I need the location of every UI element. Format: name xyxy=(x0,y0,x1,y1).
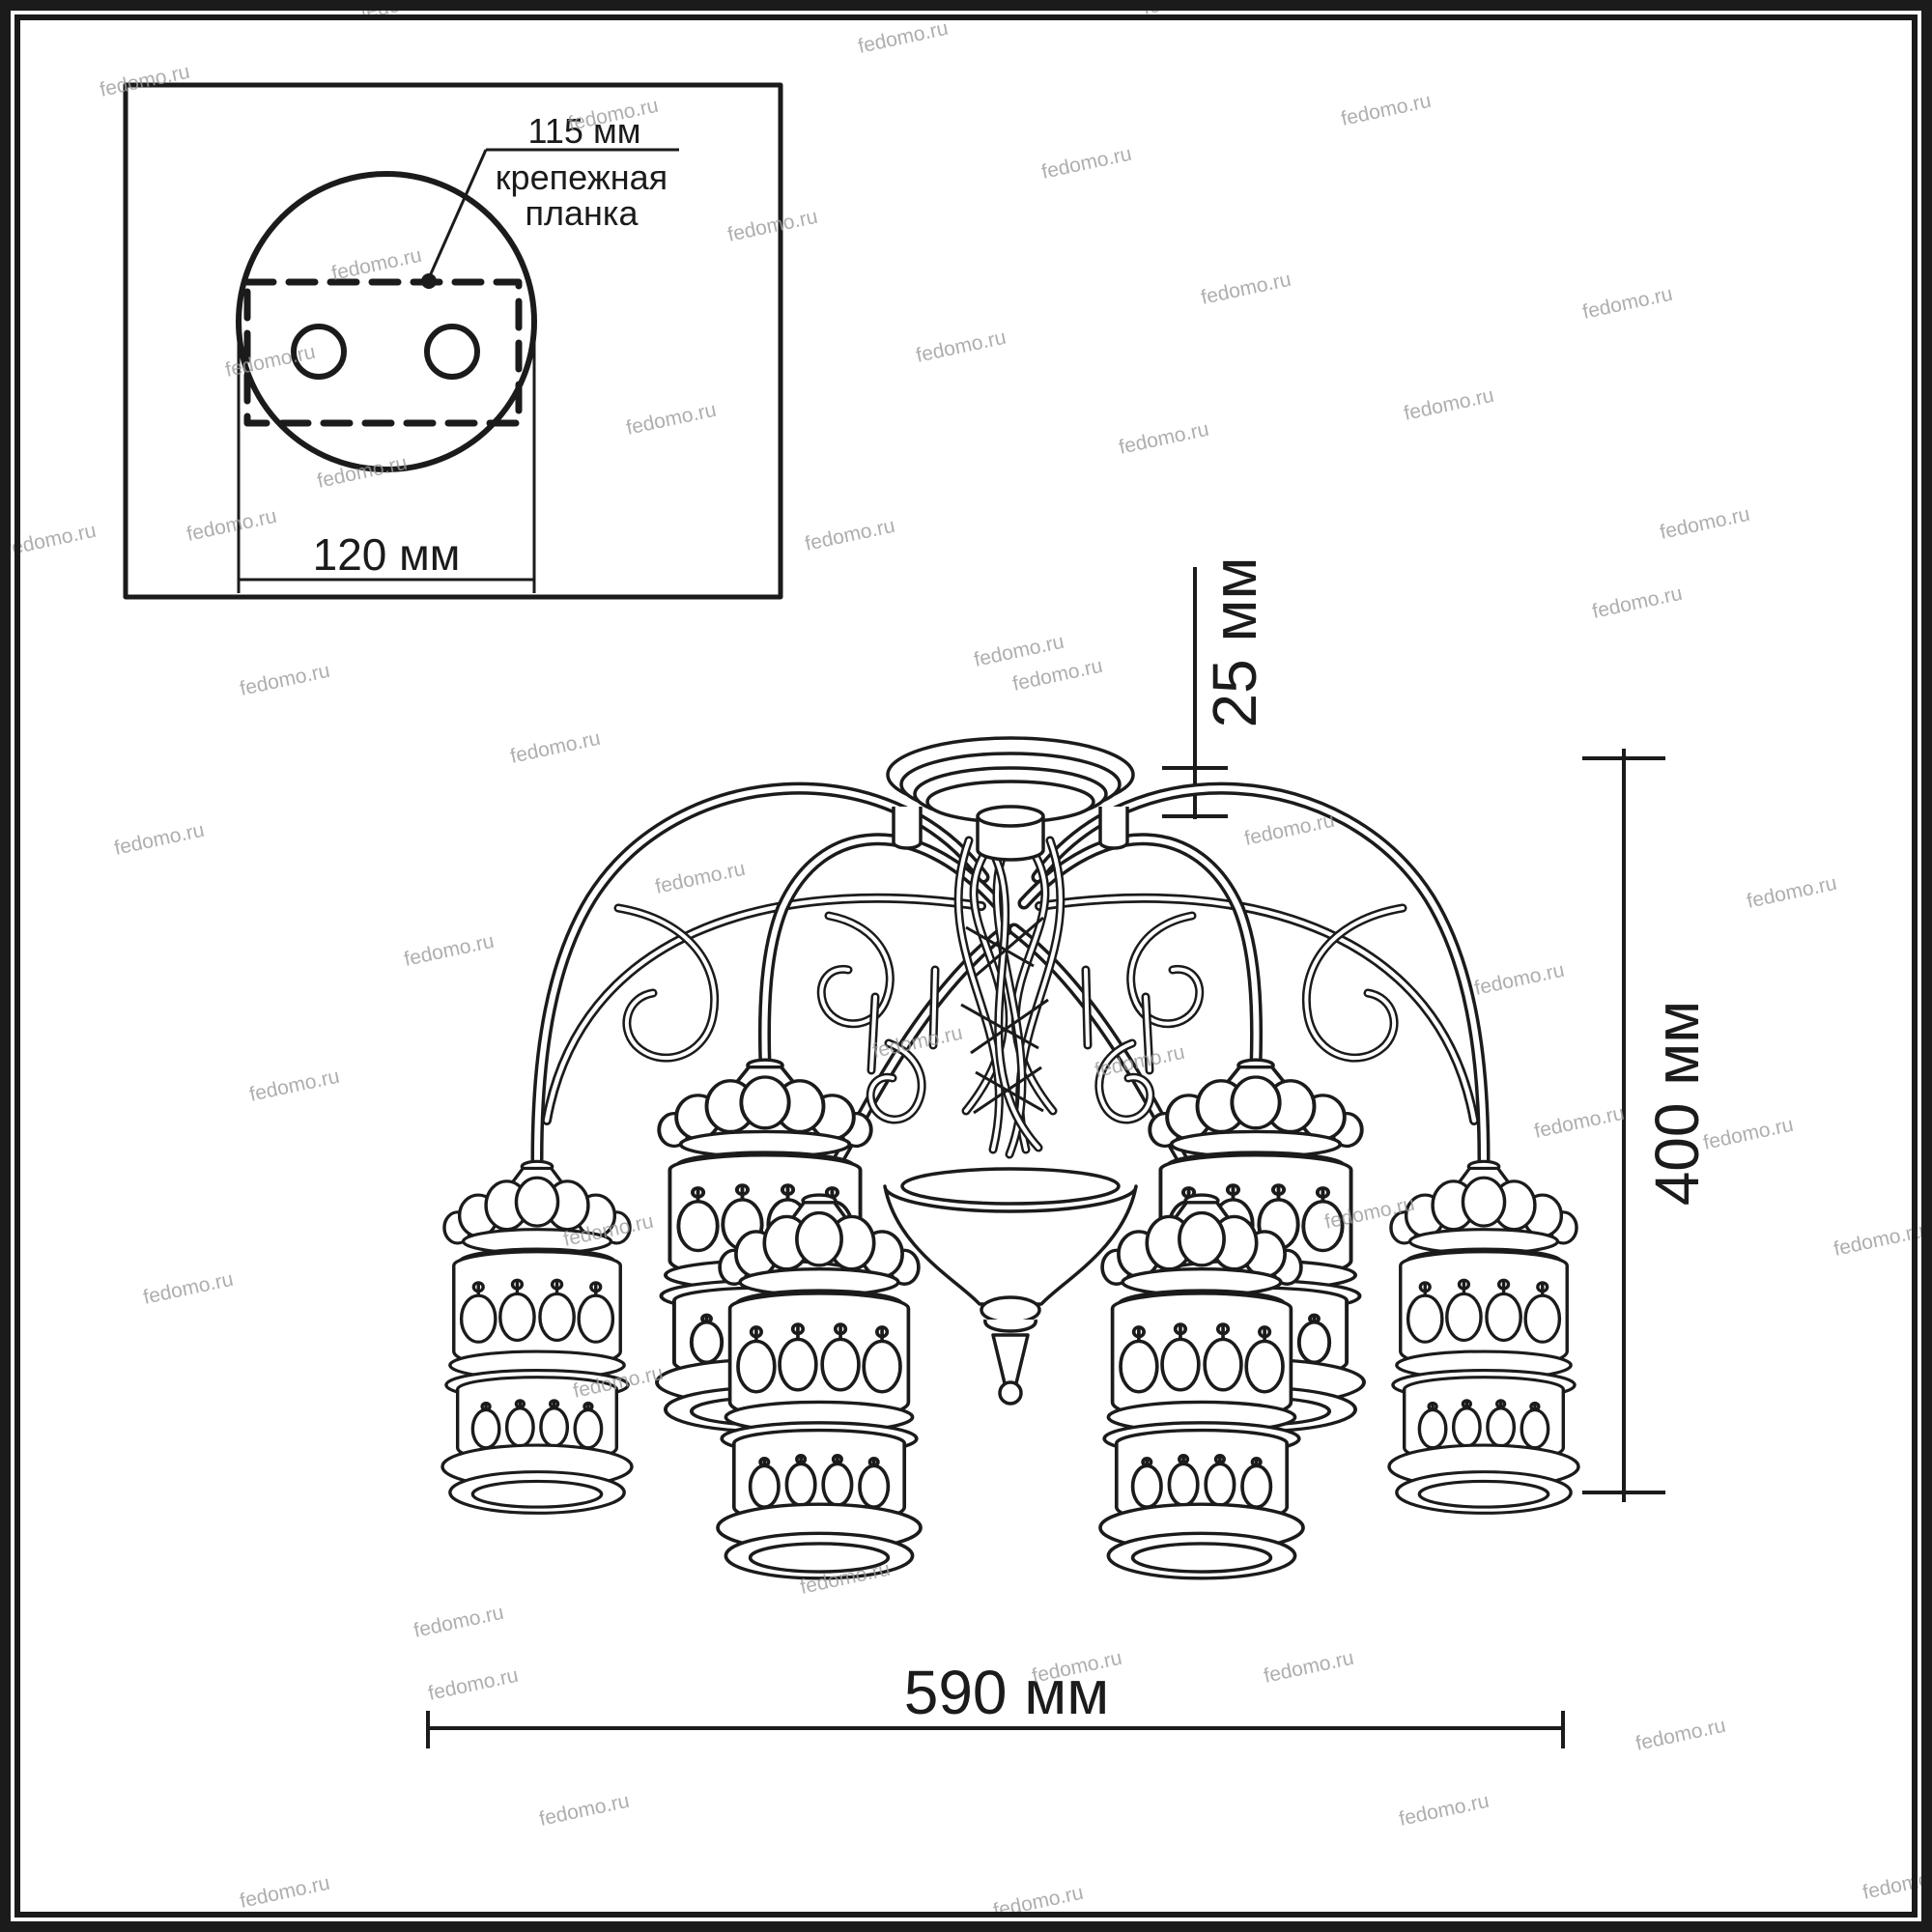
watermark-text: fedomo.ru xyxy=(803,515,896,555)
watermark-text: fedomo.ru xyxy=(1039,143,1133,184)
watermark-text: fedomo.ru xyxy=(1402,384,1495,425)
watermark-text: fedomo.ru xyxy=(508,727,602,768)
center-bowl xyxy=(885,1169,1136,1404)
canopy-finial-right xyxy=(1100,807,1127,848)
diagram-page: 115 мм крепежная планка 120 мм 25 мм 400… xyxy=(0,0,1932,1932)
chandelier-drawing xyxy=(442,738,1578,1578)
watermark-text: fedomo.ru xyxy=(1472,959,1566,1000)
watermark-text: fedomo.ru xyxy=(247,1065,341,1106)
watermark-text: fedomo.ru xyxy=(1242,810,1336,850)
watermark-text: fedomo.ru xyxy=(1532,1102,1626,1143)
watermark-text: fedomo.ru xyxy=(141,1268,235,1309)
dimension-canopy-height: 25 мм xyxy=(1162,557,1269,819)
watermark-text: fedomo.ru xyxy=(856,17,950,58)
lamp-shade-far-left xyxy=(442,1161,632,1513)
watermark-text: fedomo.ru xyxy=(98,61,191,101)
fixture-height-label: 400 мм xyxy=(1642,1001,1712,1207)
canopy-finial-left xyxy=(894,807,921,848)
watermark-text: fedomo.ru xyxy=(725,206,819,246)
technical-drawing: 115 мм крепежная планка 120 мм 25 мм 400… xyxy=(0,0,1932,1932)
dimension-fixture-width: 590 мм xyxy=(428,1658,1563,1748)
watermark-text: fedomo.ru xyxy=(1141,0,1235,19)
watermark-text: fedomo.ru xyxy=(1701,1114,1795,1154)
watermark-text: fedomo.ru xyxy=(1745,872,1838,913)
watermark-text: fedomo.ru xyxy=(624,399,718,440)
watermark-text: fedomo.ru xyxy=(185,505,278,546)
watermark-text: fedomo.ru xyxy=(1832,1220,1925,1261)
watermark-text: fedomo.ru xyxy=(238,660,331,700)
twisted-column xyxy=(958,838,1061,1154)
base-diameter-label: 120 мм xyxy=(313,529,461,580)
watermark-text: fedomo.ru xyxy=(1339,90,1433,130)
watermark-text: fedomo.ru xyxy=(1414,0,1508,14)
watermark-text: fedomo.ru xyxy=(1658,503,1751,544)
watermark-text: fedomo.ru xyxy=(238,1872,331,1913)
watermark-text: fedomo.ru xyxy=(1199,269,1293,309)
bracket-name-line1: крепежная xyxy=(496,157,668,197)
watermark-text: fedomo.ru xyxy=(991,1882,1085,1922)
watermark-text: fedomo.ru xyxy=(426,1664,520,1705)
watermark-text: fedomo.ru xyxy=(914,327,1008,367)
screw-hole-right xyxy=(427,327,477,377)
lamp-shade-bottom-right xyxy=(1100,1195,1303,1578)
watermark-text: fedomo.ru xyxy=(112,819,206,860)
canopy-height-label: 25 мм xyxy=(1200,557,1269,728)
watermark-text: fedomo.ru xyxy=(412,1602,505,1642)
watermark-text: fedomo.ru xyxy=(1580,283,1674,324)
watermark-text: fedomo.ru xyxy=(1861,1863,1932,1904)
lamp-shade-bottom-left xyxy=(718,1195,921,1578)
watermark-text: fedomo.ru xyxy=(1117,418,1210,459)
watermark-text: fedomo.ru xyxy=(402,930,496,971)
watermark-text: fedomo.ru xyxy=(653,858,747,898)
watermark-text: fedomo.ru xyxy=(1397,1790,1491,1831)
watermark-text: fedomo.ru xyxy=(537,1790,631,1831)
lamp-shade-far-right xyxy=(1389,1161,1578,1513)
watermark-text: fedomo.ru xyxy=(4,520,98,560)
watermark-text: fedomo.ru xyxy=(358,0,452,24)
watermark-text: fedomo.ru xyxy=(1590,582,1684,623)
watermark-text: fedomo.ru xyxy=(1634,1715,1727,1755)
bracket-name-line2: планка xyxy=(526,193,639,233)
canopy xyxy=(888,738,1133,860)
watermark-text: fedomo.ru xyxy=(1262,1647,1355,1688)
